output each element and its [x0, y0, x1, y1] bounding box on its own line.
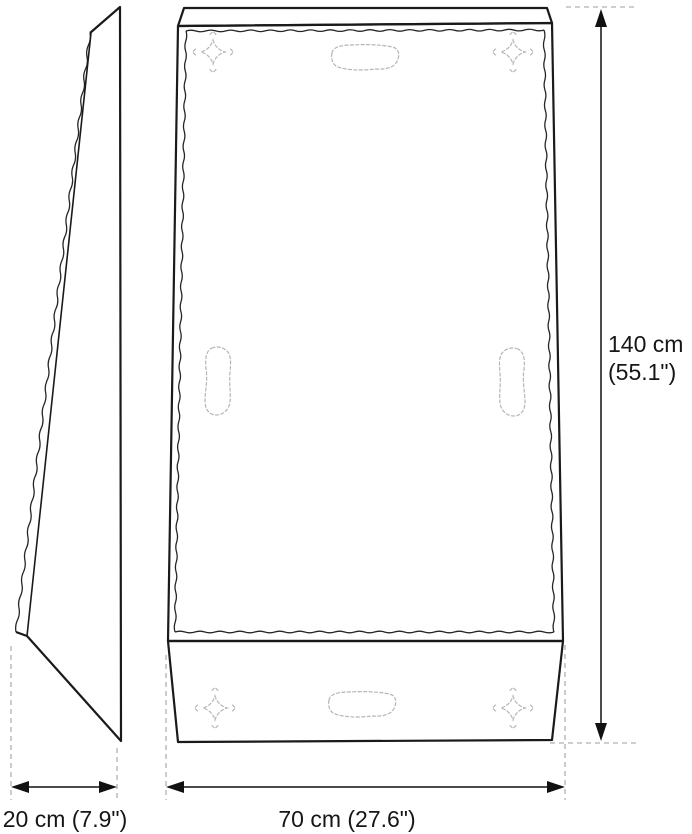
dimension-width-label: 70 cm (27.6") — [262, 806, 432, 834]
sparkle-mark-top-left — [193, 32, 234, 73]
handle-cutout-bottom — [329, 692, 396, 717]
dimension-depth — [11, 646, 117, 800]
sparkle-mark-bottom-right — [493, 688, 534, 729]
arrowhead-right-icon — [547, 781, 565, 793]
handle-cutout-top — [332, 45, 399, 70]
arrowhead-left-icon — [166, 781, 184, 793]
dimension-height-label-line1: 140 cm — [608, 331, 683, 359]
front-view-main-panel — [168, 23, 563, 641]
arrowhead-up-icon — [595, 9, 607, 27]
front-view — [168, 8, 563, 742]
arrowhead-down-icon — [595, 723, 607, 741]
side-view — [16, 7, 121, 741]
dimension-width — [166, 645, 565, 800]
side-view-fold-line — [27, 33, 91, 636]
side-view-serrated-edge — [16, 33, 91, 632]
front-view-serrated-border — [174, 29, 554, 633]
arrowhead-right-icon — [99, 781, 117, 793]
dimension-height-label-line2: (55.1") — [608, 359, 683, 387]
dimension-height-label: 140 cm (55.1") — [608, 331, 683, 386]
package-dimension-diagram — [0, 0, 692, 834]
arrowhead-left-icon — [11, 781, 29, 793]
dimension-depth-label: 20 cm (7.9") — [0, 806, 130, 834]
carry-handle-cutout-left — [205, 347, 231, 415]
carry-handle-cutout-right — [499, 348, 525, 416]
side-view-outline — [16, 7, 121, 741]
sparkle-mark-bottom-left — [195, 688, 236, 729]
sparkle-mark-top-right — [493, 32, 534, 73]
